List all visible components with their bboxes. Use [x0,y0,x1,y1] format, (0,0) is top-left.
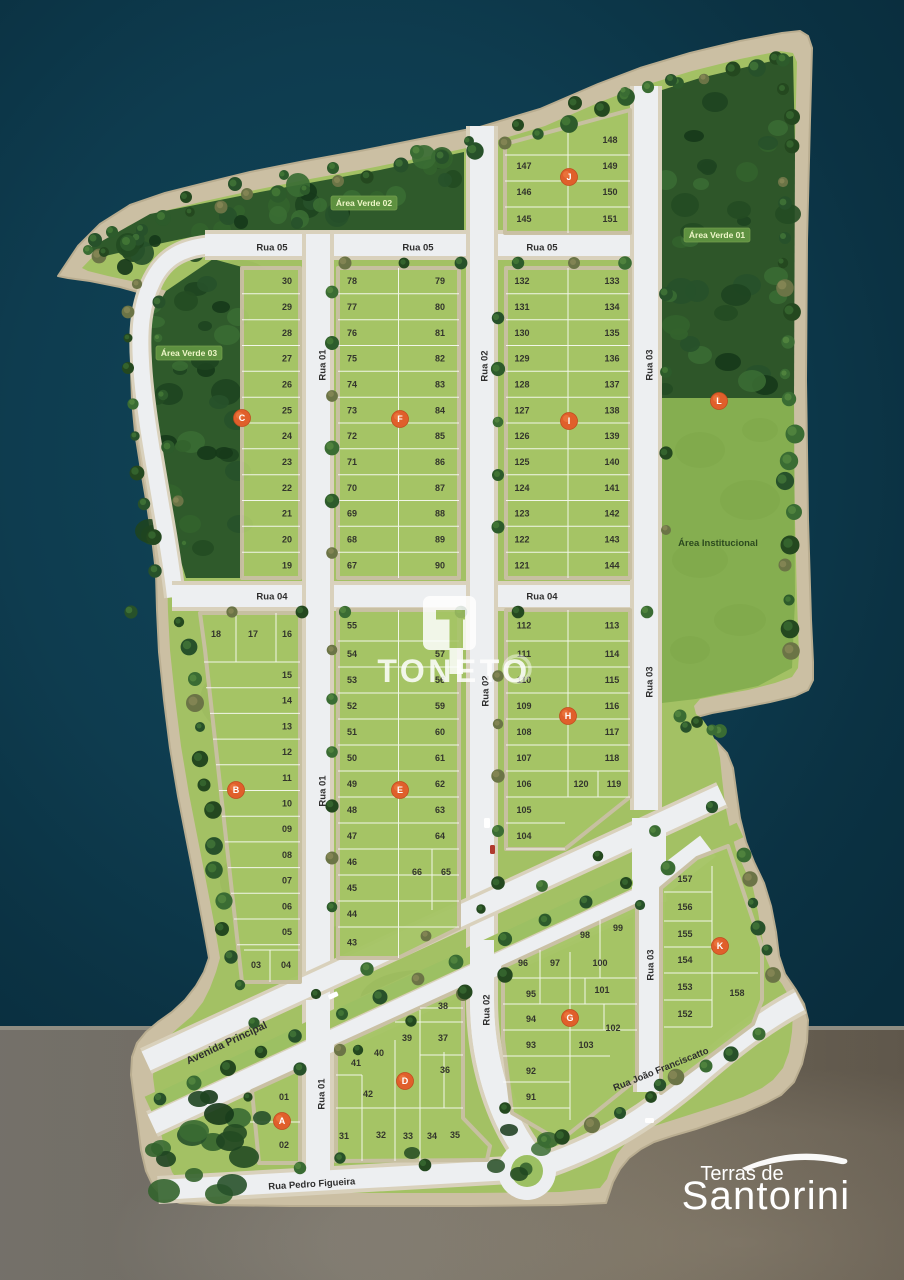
svg-text:51: 51 [347,727,357,737]
svg-text:44: 44 [347,909,357,919]
svg-text:97: 97 [550,958,560,968]
svg-text:Rua 05: Rua 05 [526,243,558,254]
svg-text:37: 37 [438,1033,448,1043]
svg-text:67: 67 [347,560,357,570]
svg-text:94: 94 [526,1014,536,1024]
svg-text:Rua 04: Rua 04 [256,592,288,603]
svg-text:47: 47 [347,831,357,841]
svg-text:83: 83 [435,379,445,389]
svg-text:92: 92 [526,1066,536,1076]
svg-text:61: 61 [435,753,445,763]
svg-text:108: 108 [516,727,531,737]
svg-text:27: 27 [282,354,292,364]
svg-text:19: 19 [282,560,292,570]
svg-text:62: 62 [435,779,445,789]
svg-text:104: 104 [516,831,531,841]
svg-text:Área Verde 02: Área Verde 02 [336,198,393,208]
svg-text:73: 73 [347,405,357,415]
svg-text:89: 89 [435,534,445,544]
svg-text:38: 38 [438,1001,448,1011]
svg-text:26: 26 [282,379,292,389]
svg-text:I: I [568,416,571,426]
svg-text:145: 145 [516,214,531,224]
svg-text:08: 08 [282,850,292,860]
svg-text:105: 105 [516,805,531,815]
svg-text:103: 103 [578,1040,593,1050]
svg-text:114: 114 [605,649,620,659]
svg-text:95: 95 [526,989,536,999]
svg-text:70: 70 [347,483,357,493]
svg-text:09: 09 [282,824,292,834]
svg-text:119: 119 [607,779,622,789]
svg-text:40: 40 [374,1048,384,1058]
svg-text:25: 25 [282,405,292,415]
svg-text:34: 34 [427,1131,437,1141]
svg-text:24: 24 [282,431,292,441]
svg-text:147: 147 [516,161,531,171]
svg-text:136: 136 [604,354,619,364]
svg-text:71: 71 [347,457,357,467]
svg-text:15: 15 [282,670,292,680]
svg-text:98: 98 [580,930,590,940]
svg-text:03: 03 [251,960,261,970]
svg-text:12: 12 [282,747,292,757]
svg-text:Rua 05: Rua 05 [256,243,288,254]
svg-text:144: 144 [604,560,619,570]
svg-text:88: 88 [435,509,445,519]
svg-text:148: 148 [602,135,617,145]
svg-text:42: 42 [363,1089,373,1099]
svg-text:39: 39 [402,1033,412,1043]
svg-text:36: 36 [440,1065,450,1075]
svg-text:125: 125 [514,457,529,467]
svg-text:A: A [279,1116,286,1126]
svg-text:Rua 01: Rua 01 [318,775,329,807]
svg-text:B: B [233,785,240,795]
svg-text:17: 17 [248,629,258,639]
svg-text:Rua 03: Rua 03 [645,349,656,380]
svg-text:109: 109 [516,701,531,711]
svg-text:07: 07 [282,876,292,886]
svg-text:102: 102 [605,1023,620,1033]
svg-text:Rua 02: Rua 02 [480,350,491,381]
svg-text:Rua 01: Rua 01 [318,349,329,381]
svg-text:65: 65 [441,867,451,877]
svg-text:146: 146 [516,187,531,197]
svg-text:05: 05 [282,927,292,937]
svg-text:122: 122 [514,534,529,544]
svg-text:22: 22 [282,483,292,493]
svg-text:Área Verde 03: Área Verde 03 [161,348,218,358]
svg-text:130: 130 [514,328,529,338]
svg-text:140: 140 [604,457,619,467]
svg-text:96: 96 [518,958,528,968]
svg-text:52: 52 [347,701,357,711]
svg-text:132: 132 [514,276,529,286]
svg-text:152: 152 [677,1009,692,1019]
svg-text:Rua 05: Rua 05 [402,243,434,254]
svg-text:120: 120 [573,779,588,789]
svg-text:J: J [566,172,571,182]
svg-text:93: 93 [526,1040,536,1050]
svg-text:69: 69 [347,509,357,519]
svg-text:127: 127 [514,405,529,415]
svg-text:04: 04 [281,960,291,970]
svg-text:55: 55 [347,621,357,631]
svg-text:91: 91 [526,1092,536,1102]
svg-text:14: 14 [282,696,292,706]
svg-text:Rua 01: Rua 01 [317,1078,328,1110]
svg-text:118: 118 [605,753,620,763]
svg-text:Rua 03: Rua 03 [646,949,657,980]
svg-text:30: 30 [282,276,292,286]
svg-text:C: C [239,413,246,423]
svg-text:45: 45 [347,883,357,893]
svg-text:117: 117 [605,727,620,737]
svg-text:124: 124 [514,483,529,493]
svg-text:99: 99 [613,923,623,933]
svg-text:68: 68 [347,534,357,544]
svg-text:11: 11 [282,773,292,783]
svg-text:13: 13 [282,721,292,731]
svg-text:121: 121 [514,560,529,570]
svg-text:59: 59 [435,701,445,711]
svg-text:128: 128 [514,379,529,389]
svg-text:D: D [402,1076,409,1086]
svg-text:101: 101 [594,985,609,995]
svg-text:35: 35 [450,1130,460,1140]
svg-text:139: 139 [604,431,619,441]
svg-text:66: 66 [412,867,422,877]
svg-text:Rua 03: Rua 03 [645,666,656,697]
svg-text:113: 113 [605,621,620,631]
svg-text:153: 153 [677,982,692,992]
svg-text:80: 80 [435,302,445,312]
svg-text:158: 158 [729,988,744,998]
svg-text:16: 16 [282,629,292,639]
svg-text:28: 28 [282,328,292,338]
svg-text:87: 87 [435,483,445,493]
svg-text:02: 02 [279,1140,289,1150]
svg-text:156: 156 [677,902,692,912]
svg-text:20: 20 [282,534,292,544]
svg-text:126: 126 [514,431,529,441]
svg-text:06: 06 [282,901,292,911]
svg-text:82: 82 [435,354,445,364]
svg-text:76: 76 [347,328,357,338]
svg-text:106: 106 [516,779,531,789]
svg-text:100: 100 [592,958,607,968]
svg-text:77: 77 [347,302,357,312]
svg-text:81: 81 [435,328,445,338]
svg-text:31: 31 [339,1131,349,1141]
svg-text:84: 84 [435,405,445,415]
svg-text:78: 78 [347,276,357,286]
svg-text:53: 53 [347,675,357,685]
svg-text:E: E [397,785,403,795]
svg-text:L: L [716,396,722,406]
svg-text:49: 49 [347,779,357,789]
svg-text:151: 151 [602,214,617,224]
svg-text:154: 154 [677,955,692,965]
svg-text:Santorini: Santorini [682,1174,851,1218]
svg-text:107: 107 [516,753,531,763]
svg-text:138: 138 [604,405,619,415]
svg-text:116: 116 [605,701,620,711]
svg-text:K: K [717,941,724,951]
svg-text:23: 23 [282,457,292,467]
svg-text:141: 141 [604,483,619,493]
svg-text:50: 50 [347,753,357,763]
svg-text:131: 131 [514,302,529,312]
svg-text:Área Verde 01: Área Verde 01 [689,230,746,240]
svg-text:157: 157 [677,874,692,884]
svg-text:21: 21 [282,509,292,519]
svg-text:29: 29 [282,302,292,312]
svg-text:149: 149 [602,161,617,171]
svg-text:143: 143 [604,534,619,544]
svg-text:48: 48 [347,805,357,815]
svg-text:75: 75 [347,354,357,364]
svg-text:46: 46 [347,857,357,867]
svg-text:01: 01 [279,1092,289,1102]
svg-text:Rua 02: Rua 02 [482,994,493,1025]
svg-text:F: F [397,414,403,424]
svg-text:18: 18 [211,629,221,639]
svg-text:85: 85 [435,431,445,441]
svg-text:134: 134 [604,302,619,312]
svg-text:60: 60 [435,727,445,737]
svg-text:63: 63 [435,805,445,815]
svg-text:41: 41 [351,1058,361,1068]
svg-text:137: 137 [604,379,619,389]
svg-text:G: G [566,1013,573,1023]
svg-text:33: 33 [403,1131,413,1141]
svg-text:155: 155 [677,929,692,939]
svg-text:115: 115 [605,675,620,685]
svg-text:142: 142 [604,509,619,519]
svg-text:32: 32 [376,1130,386,1140]
svg-text:54: 54 [347,649,357,659]
svg-text:90: 90 [435,560,445,570]
svg-text:Área Institucional: Área Institucional [678,538,758,549]
svg-text:H: H [565,711,572,721]
svg-text:123: 123 [514,509,529,519]
svg-text:129: 129 [514,354,529,364]
svg-text:74: 74 [347,379,357,389]
svg-text:133: 133 [604,276,619,286]
svg-text:79: 79 [435,276,445,286]
svg-text:150: 150 [602,187,617,197]
svg-text:112: 112 [517,621,532,631]
svg-text:72: 72 [347,431,357,441]
svg-text:86: 86 [435,457,445,467]
svg-text:43: 43 [347,938,357,948]
svg-text:135: 135 [604,328,619,338]
svg-text:64: 64 [435,831,445,841]
svg-text:10: 10 [282,799,292,809]
svg-text:Rua 04: Rua 04 [526,592,558,603]
